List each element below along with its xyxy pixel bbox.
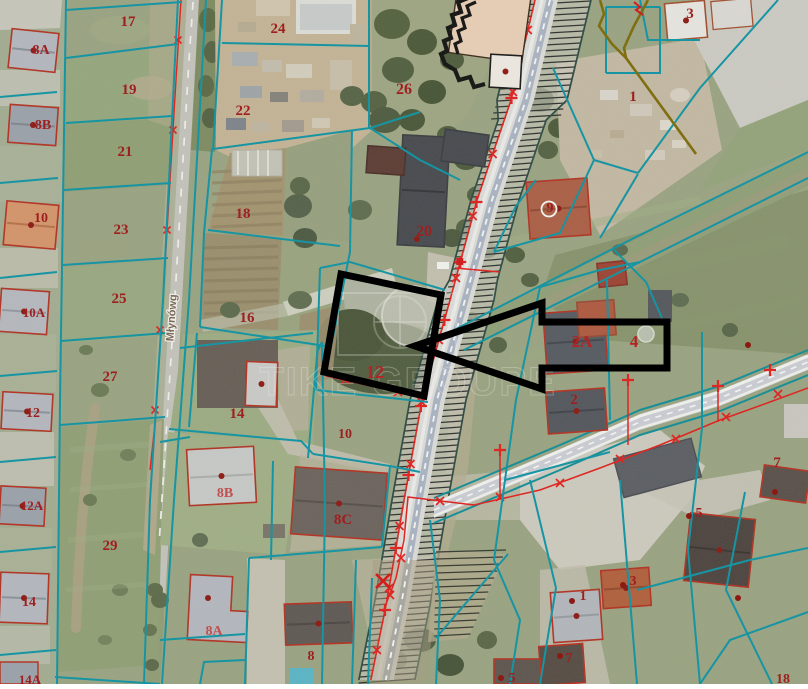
svg-text:8B: 8B xyxy=(217,486,233,501)
svg-text:1: 1 xyxy=(629,89,637,105)
svg-text:27: 27 xyxy=(103,369,119,385)
svg-text:16: 16 xyxy=(240,310,256,326)
svg-text:18: 18 xyxy=(776,672,790,684)
svg-text:7: 7 xyxy=(773,455,781,471)
svg-text:10A: 10A xyxy=(23,305,46,320)
svg-text:9: 9 xyxy=(547,201,554,216)
svg-text:18: 18 xyxy=(236,206,251,222)
svg-text:25: 25 xyxy=(112,291,127,307)
svg-text:17: 17 xyxy=(121,14,137,30)
svg-text:8: 8 xyxy=(308,649,315,664)
svg-text:29: 29 xyxy=(103,538,118,554)
svg-text:1: 1 xyxy=(580,589,587,604)
svg-text:22: 22 xyxy=(236,103,251,119)
svg-text:10: 10 xyxy=(338,427,352,442)
svg-text:10: 10 xyxy=(34,211,48,226)
svg-text:12A: 12A xyxy=(21,498,44,513)
svg-text:14A: 14A xyxy=(19,672,42,684)
svg-text:5: 5 xyxy=(509,671,516,684)
svg-text:19: 19 xyxy=(122,82,137,98)
svg-text:14: 14 xyxy=(230,406,246,422)
svg-text:23: 23 xyxy=(114,222,129,238)
svg-text:12: 12 xyxy=(366,362,384,382)
svg-text:12: 12 xyxy=(26,406,40,421)
svg-text:8C: 8C xyxy=(334,512,352,528)
svg-text:8B: 8B xyxy=(35,118,51,133)
svg-text:8A: 8A xyxy=(32,43,50,58)
svg-text:3: 3 xyxy=(630,574,637,589)
svg-text:3: 3 xyxy=(686,6,694,22)
svg-text:5: 5 xyxy=(696,506,703,521)
svg-text:14: 14 xyxy=(22,595,36,610)
svg-text:20: 20 xyxy=(416,223,432,240)
svg-text:24: 24 xyxy=(271,21,287,37)
svg-text:2: 2 xyxy=(570,392,578,408)
svg-text:8A: 8A xyxy=(205,624,223,639)
svg-text:26: 26 xyxy=(396,81,412,98)
svg-text:7: 7 xyxy=(566,651,573,666)
svg-text:21: 21 xyxy=(118,144,133,160)
svg-text:2A: 2A xyxy=(572,332,594,351)
